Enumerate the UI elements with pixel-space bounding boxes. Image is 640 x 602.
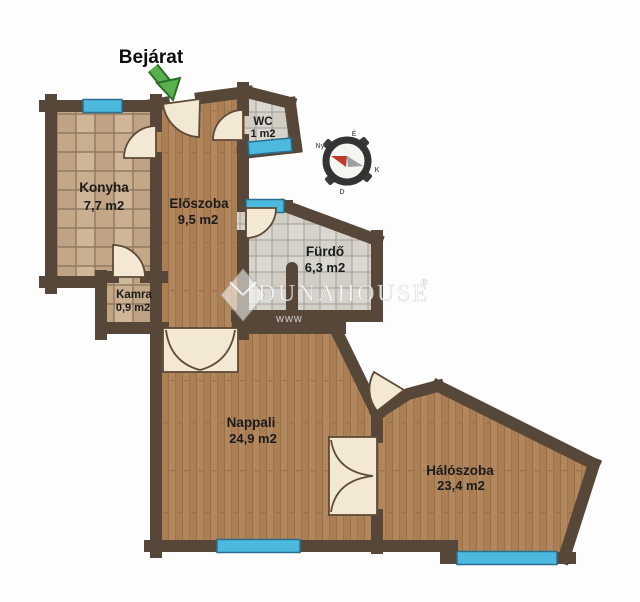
bedroom-double-door [329, 437, 377, 515]
label-furdo: Fürdő 6,3 m2 [305, 244, 345, 275]
svg-text:1 m2: 1 m2 [250, 128, 275, 140]
kitchen-window [83, 100, 122, 113]
compass-label-s: D [339, 189, 344, 196]
compass-label-w: Ny [316, 143, 325, 150]
svg-text:Előszoba: Előszoba [169, 196, 229, 211]
svg-text:Fürdő: Fürdő [306, 244, 344, 259]
svg-text:0,9 m2: 0,9 m2 [116, 302, 150, 314]
svg-text:Hálószoba: Hálószoba [426, 463, 494, 478]
label-haloszoba: Hálószoba 23,4 m2 [426, 463, 494, 493]
label-nappali: Nappali 24,9 m2 [227, 415, 277, 446]
svg-text:9,5 m2: 9,5 m2 [178, 212, 218, 227]
living-room-double-door [163, 328, 238, 372]
svg-text:24,9 m2: 24,9 m2 [229, 431, 277, 446]
floor-plan: DUNAHOUSE ® www Konyha 7,7 m2 Előszoba 9… [0, 0, 640, 602]
svg-text:Nappali: Nappali [227, 415, 276, 430]
compass-label-e: K [374, 167, 379, 174]
svg-text:WC: WC [253, 116, 272, 128]
svg-text:23,4 m2: 23,4 m2 [437, 478, 485, 493]
label-kamra: Kamra 0,9 m2 [116, 289, 153, 314]
watermark-subtext: www [275, 313, 303, 325]
svg-text:Konyha: Konyha [79, 180, 129, 195]
living-room-window [217, 540, 300, 553]
entry-label: Bejárat [119, 47, 184, 68]
bedroom-window [457, 552, 557, 565]
watermark-registered-icon: ® [421, 277, 428, 287]
compass-rose: É Ny D K [316, 129, 380, 196]
label-wc: WC 1 m2 [250, 116, 275, 140]
entry-marker: Bejárat [119, 47, 184, 100]
compass-label-n: É [352, 129, 357, 138]
watermark-text: DUNAHOUSE [258, 281, 430, 307]
floor-plan-canvas: DUNAHOUSE ® www Konyha 7,7 m2 Előszoba 9… [0, 0, 640, 602]
svg-text:6,3 m2: 6,3 m2 [305, 260, 345, 275]
svg-text:7,7 m2: 7,7 m2 [84, 198, 124, 213]
svg-text:Kamra: Kamra [116, 289, 152, 301]
